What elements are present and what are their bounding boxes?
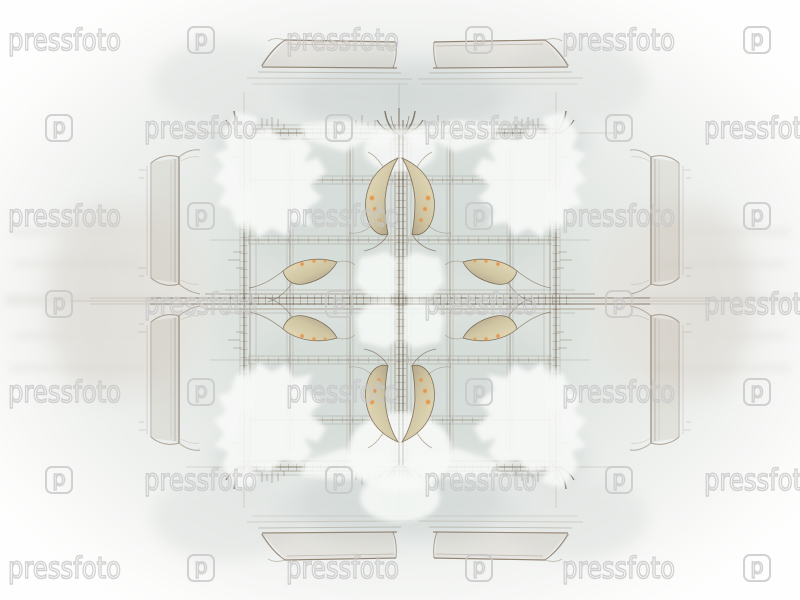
- watermark-text: pressfoto: [144, 463, 257, 497]
- watermark-text: pressfoto: [286, 375, 399, 409]
- watermark-text: pressfoto: [424, 463, 537, 497]
- watermark-text: pressfoto: [562, 199, 675, 233]
- watermark-text: pressfoto: [424, 287, 537, 321]
- watermark-text: pressfoto: [704, 463, 800, 497]
- watermark-text: pressfoto: [286, 551, 399, 585]
- watermark-text: pressfoto: [704, 287, 800, 321]
- watermark-text: pressfoto: [8, 551, 121, 585]
- watermark-text: pressfoto: [562, 23, 675, 57]
- watermark-text: pressfoto: [8, 23, 121, 57]
- stock-photo-preview: p: [0, 0, 800, 600]
- watermark-text: pressfoto: [562, 551, 675, 585]
- watermark-text: pressfoto: [144, 287, 257, 321]
- watermark-text: pressfoto: [704, 111, 800, 145]
- watermark-text: pressfoto: [144, 111, 257, 145]
- watermark-text: pressfoto: [286, 23, 399, 57]
- watermark-text: pressfoto: [8, 375, 121, 409]
- fractal-artwork: p: [0, 0, 800, 600]
- watermark-text: pressfoto: [8, 199, 121, 233]
- watermark-text: pressfoto: [286, 199, 399, 233]
- watermark-text: pressfoto: [424, 111, 537, 145]
- watermark-text: pressfoto: [562, 375, 675, 409]
